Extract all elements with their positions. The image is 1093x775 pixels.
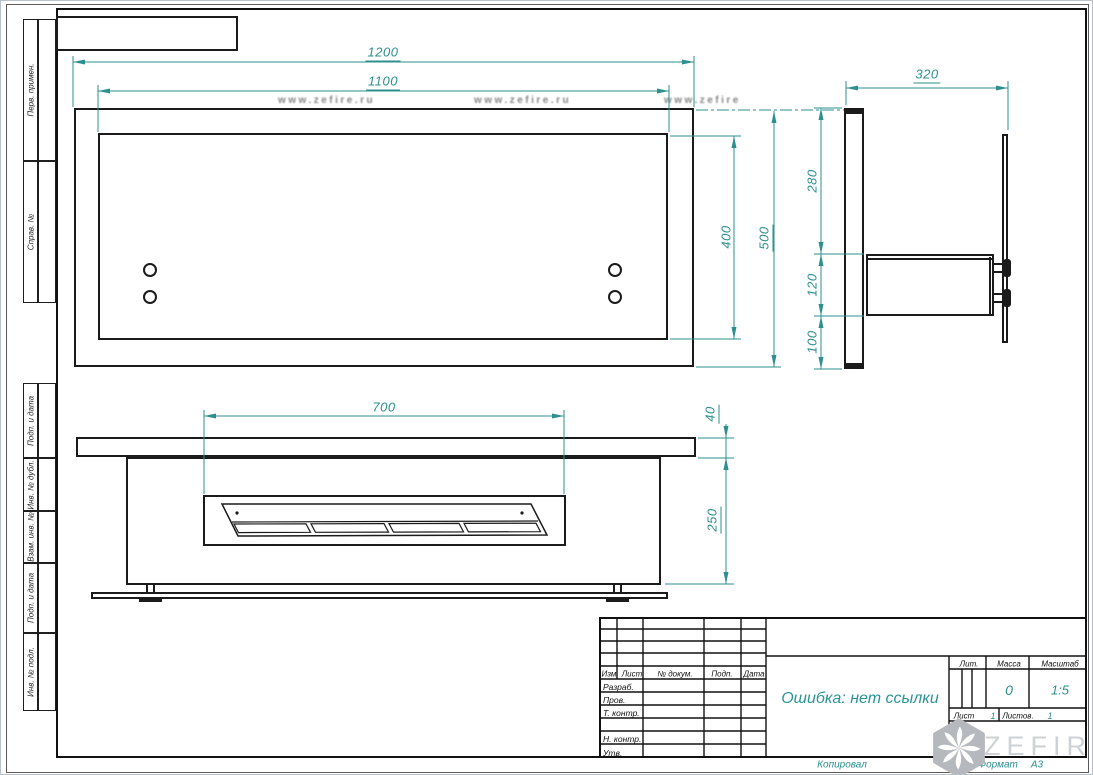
lit-label: Лит. xyxy=(960,660,979,669)
strip-divider xyxy=(37,512,39,562)
front-view-inner-frame xyxy=(98,133,668,340)
strip-label: Инв. № подл. xyxy=(27,647,36,697)
strip-divider xyxy=(37,564,39,632)
dim-value-500: 500 xyxy=(757,224,774,251)
strip-divider xyxy=(37,162,39,302)
dim-value-1100: 1100 xyxy=(366,74,400,91)
foot-stem xyxy=(620,585,622,592)
strip-divider xyxy=(37,459,39,510)
body-box-inner-line xyxy=(989,257,991,314)
col-ndokum: № докум. xyxy=(657,670,692,679)
strip-divider xyxy=(37,384,39,457)
mount-hole xyxy=(608,263,622,277)
mount-hole xyxy=(143,263,157,277)
strip-label: Подп. и дата xyxy=(27,395,36,445)
foot-stem xyxy=(146,585,148,592)
dim-value-120: 120 xyxy=(805,273,820,296)
watermark-url: www.zefire.ru xyxy=(474,95,637,108)
col-data: Дата xyxy=(743,670,764,679)
document-title: Ошибка: нет ссылки xyxy=(771,687,949,711)
margin-strip-perv-primen: Перв. примен. xyxy=(23,19,56,161)
strip-label: Справ. № xyxy=(27,214,36,250)
strip-label: Подп. и дата xyxy=(27,573,36,623)
margin-strip-inv-podl: Инв. № подл. xyxy=(23,633,56,711)
mount-hole xyxy=(608,290,622,304)
col-podp: Подп. xyxy=(711,670,732,679)
bracket-line xyxy=(994,301,1002,303)
margin-strip-vzam-inv: Взам. инв. № xyxy=(23,511,56,563)
bracket-line xyxy=(994,293,1002,295)
bracket-line xyxy=(994,271,1002,273)
mass-value: 0 xyxy=(1005,682,1013,698)
side-view-body-box xyxy=(866,254,994,316)
row-prov: Пров. xyxy=(603,695,625,705)
strip-label: Инв. № дубл. xyxy=(27,460,36,509)
side-view-glass-panel xyxy=(1002,134,1008,343)
strip-divider xyxy=(37,634,39,710)
margin-strip-podp-data-2: Подп. и дата xyxy=(23,563,56,633)
dim-value-320: 320 xyxy=(913,67,940,84)
wall-panel-bottom-cap xyxy=(845,363,863,369)
dim-value-280: 280 xyxy=(805,169,820,192)
foot-stem xyxy=(153,585,155,592)
foot-pad xyxy=(606,598,629,602)
dim-value-400: 400 xyxy=(719,225,734,248)
dim-value-100: 100 xyxy=(805,330,820,353)
bottom-view-shelf xyxy=(76,437,696,457)
strip-label: Взам. инв. № xyxy=(27,512,36,561)
strip-divider xyxy=(37,20,39,160)
margin-strip-sprav-no: Справ. № xyxy=(23,161,56,303)
zefire-logo-text: ZEFIRE xyxy=(984,731,1093,762)
col-list: Лист xyxy=(622,670,643,679)
side-view-wall-panel xyxy=(844,108,864,369)
scale-label: Масштаб xyxy=(1041,660,1078,669)
burner-slot xyxy=(389,523,464,532)
burner-divider-line xyxy=(232,521,538,522)
burner-slot xyxy=(311,524,389,533)
foot-pad xyxy=(139,598,162,602)
dim-value-40: 40 xyxy=(703,404,720,423)
top-left-stamp-cell xyxy=(56,16,238,51)
col-izm: Изм. xyxy=(601,670,618,679)
burner-slot xyxy=(464,523,541,532)
mass-label: Масса xyxy=(997,660,1021,669)
drawing-sheet: Перв. примен. Справ. № Подп. и дата Инв.… xyxy=(0,0,1093,775)
wall-panel-top-cap xyxy=(845,108,863,114)
row-utv: Утв. xyxy=(603,748,622,758)
margin-strip-inv-dubl: Инв. № дубл. xyxy=(23,458,56,511)
burner-slot xyxy=(234,524,311,533)
burner-insert xyxy=(201,493,571,551)
margin-strip-podp-data-1: Подп. и дата xyxy=(23,383,56,458)
row-n-kontr: Н. контр. xyxy=(603,734,641,744)
scale-value: 1:5 xyxy=(1051,683,1069,698)
row-t-kontr: Т. контр. xyxy=(603,708,640,718)
dim-value-700: 700 xyxy=(372,400,395,415)
bracket-line xyxy=(994,263,1002,265)
burner-dot xyxy=(235,511,238,514)
watermark-url: www.zefire.ru xyxy=(664,95,740,108)
burner-outline xyxy=(222,504,547,536)
burner-dot xyxy=(520,511,523,514)
watermark-url: www.zefire.ru xyxy=(278,95,441,108)
foot-stem xyxy=(613,585,615,592)
dim-value-1200: 1200 xyxy=(366,45,401,62)
body-box-inner-line xyxy=(868,258,992,260)
copied-label: Копировал xyxy=(817,760,867,771)
mount-hole xyxy=(143,290,157,304)
bottom-view-base-plate xyxy=(91,592,668,599)
row-razrab: Разраб. xyxy=(603,682,634,692)
strip-label: Перв. примен. xyxy=(27,63,36,116)
sheets-label: Листов. xyxy=(1002,712,1033,721)
sheets-value: 1 xyxy=(1047,711,1052,721)
dim-value-250: 250 xyxy=(705,506,722,533)
